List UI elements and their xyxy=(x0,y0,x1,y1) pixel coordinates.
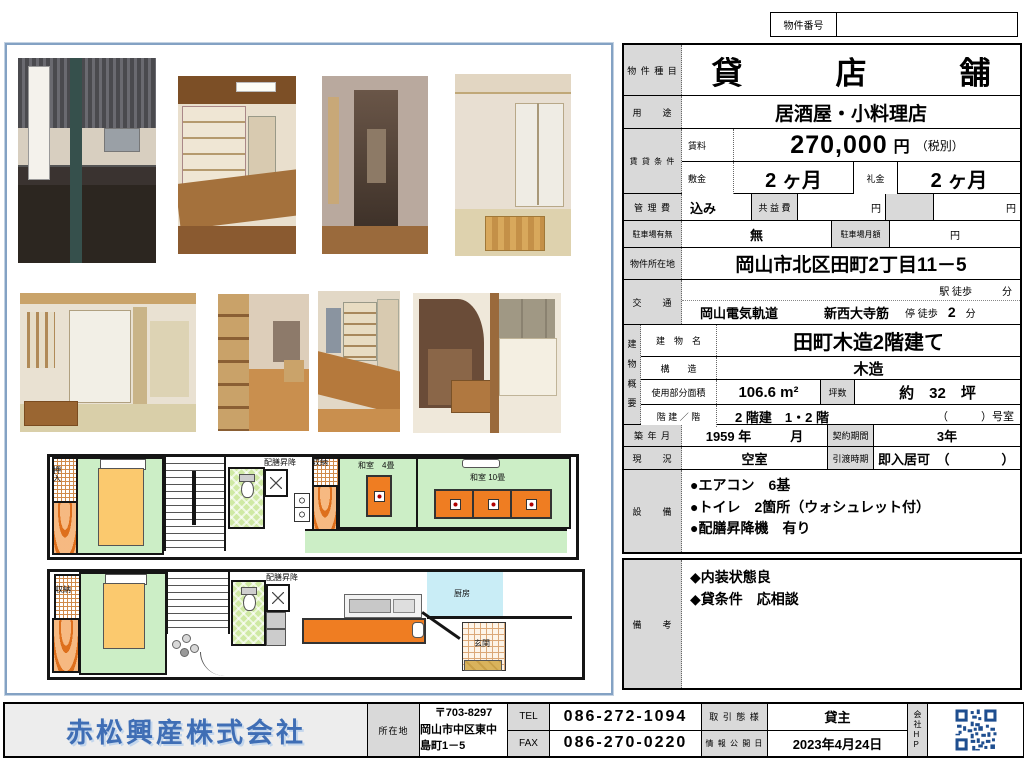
bname-label: 建 物 名 xyxy=(641,325,717,356)
floors-value: 2 階建 1・2 階 xyxy=(717,405,847,427)
address-label: 物件所在地 xyxy=(624,248,682,279)
tel-label: TEL xyxy=(507,704,549,730)
toilet-1f xyxy=(231,580,266,646)
footer-bar: 赤松興産株式会社 所在地 〒703-8297 岡山市中区東中島町1－5 TEL … xyxy=(3,702,1024,758)
remarks-label: 備 考 xyxy=(624,560,682,688)
photo-hallway xyxy=(322,76,428,254)
traffic-label: 交 通 xyxy=(624,280,682,324)
usage-value: 居酒屋・小料理店 xyxy=(682,96,1020,128)
rent-unit: 円 xyxy=(894,133,910,157)
traffic-stop: 新西大寺筋 xyxy=(824,303,889,322)
structure-value: 木造 xyxy=(717,357,1020,379)
haizen-2f-label: 配膳昇降 xyxy=(264,459,296,467)
washarea-1f xyxy=(52,618,80,673)
bname-value: 田町木造2階建て xyxy=(717,325,1020,356)
entrance-mat xyxy=(464,660,502,671)
room-2f-left xyxy=(76,457,164,555)
company-name: 赤松興産株式会社 xyxy=(66,711,306,750)
back-counter-1f xyxy=(344,594,422,618)
counter-1f xyxy=(302,618,426,644)
rent-note: （税別） xyxy=(916,137,964,154)
mgmt-label: 管 理 費 xyxy=(624,194,682,220)
photo-tatami-alcove xyxy=(413,293,561,433)
company-hp-label: 会 社 H P xyxy=(907,704,927,756)
deal-value: 貸主 xyxy=(767,704,907,730)
built-value: 1959 年 月 xyxy=(682,425,828,446)
contract-label: 契約期間 xyxy=(828,425,874,446)
property-number-box: 物件番号 xyxy=(770,12,1018,37)
rent-value: 270,000 xyxy=(790,131,887,160)
stairs-2f xyxy=(164,457,226,551)
parking-label: 駐車場有無 xyxy=(624,221,682,247)
property-number-value xyxy=(837,13,1017,36)
traffic-company: 岡山電気軌道 xyxy=(700,303,778,322)
building-label: 建 物 概 要 xyxy=(624,325,641,424)
kyoueki-label: 共 益 費 xyxy=(752,194,798,220)
status-label: 現 況 xyxy=(624,447,682,469)
handover-label: 引渡時期 xyxy=(828,447,874,469)
washarea-2f-2 xyxy=(312,485,338,533)
mgmt-extra-value: 円 xyxy=(934,194,1020,220)
floorplan-1f: 収納 配膳昇降 厨房 玄関 xyxy=(47,569,585,680)
handover-value: 即入居可 （ ） xyxy=(874,447,1020,469)
photo-counter-shelves xyxy=(178,76,296,254)
lease-label: 賃 貸 条 件 xyxy=(624,129,682,193)
dumbwaiter-1f xyxy=(266,584,290,612)
rent-label: 賃料 xyxy=(682,129,734,161)
remarks-item: ◆貸条件 応相談 xyxy=(690,588,1020,610)
storage-1f xyxy=(54,574,81,620)
photo-tatami-room-2 xyxy=(20,293,196,432)
floors-label: 階 建 ／ 階 xyxy=(641,405,717,427)
traffic-line1: 駅 徒歩 分 xyxy=(682,280,1020,301)
contract-value: 3年 xyxy=(874,425,1020,446)
photo-and-plan-panel: 押入 配膳昇降 収納 和室 4畳 和室 10畳 xyxy=(5,43,613,695)
shuno-2f-label: 収納 xyxy=(312,459,328,467)
genkan-label: 玄関 xyxy=(474,640,490,648)
deposit-label: 敷金 xyxy=(682,162,734,194)
company-address: 岡山市中区東中島町1－5 xyxy=(420,722,507,755)
date-label: 情 報 公 開 日 xyxy=(701,731,767,757)
key-money-label: 礼金 xyxy=(854,162,898,194)
remarks-box: 備 考 ◆内装状態良 ◆貸条件 応相談 xyxy=(622,558,1022,690)
oshiire-label: 押入 xyxy=(53,467,62,484)
property-info-table: 物 件 種 目 貸 店 舗 用 途 居酒屋・小料理店 賃 貸 条 件 賃料 27… xyxy=(622,43,1022,554)
toilet-2f xyxy=(228,467,265,529)
tel-value: 086-272-1094 xyxy=(549,704,701,730)
fax-value: 086-270-0220 xyxy=(549,731,701,757)
type-label: 物 件 種 目 xyxy=(624,45,682,95)
corridor-2f xyxy=(305,529,567,553)
address-value: 岡山市北区田町2丁目11－5 xyxy=(682,248,1020,279)
qr-code xyxy=(954,708,998,752)
mgmt-extra-label xyxy=(886,194,934,220)
property-number-label: 物件番号 xyxy=(771,13,837,36)
usage-label: 用 途 xyxy=(624,96,682,128)
status-value: 空室 xyxy=(682,447,828,469)
tsubo-value: 約 32 坪 xyxy=(855,380,1020,404)
photo-exterior xyxy=(18,58,156,263)
haizen-1f-label: 配膳昇降 xyxy=(266,574,298,582)
kyoueki-value: 円 xyxy=(798,194,886,220)
kitchen-label: 厨房 xyxy=(454,590,470,598)
parking-monthly-label: 駐車場月額 xyxy=(832,221,890,247)
key-money-value: 2 ヶ月 xyxy=(898,162,1020,194)
area-value: 106.6 m² xyxy=(717,380,821,404)
date-value: 2023年4月24日 xyxy=(767,731,907,757)
washitsu-4: 和室 4畳 xyxy=(338,457,418,529)
remarks-item: ◆内装状態良 xyxy=(690,566,1020,588)
structure-label: 構 造 xyxy=(641,357,717,379)
photo-hallway-shelves xyxy=(218,294,309,431)
deposit-value: 2 ヶ月 xyxy=(734,162,854,194)
floors-room: （ ）号室 xyxy=(847,405,1020,427)
equipment-label: 設 備 xyxy=(624,470,682,552)
traffic-tail: 停 徒歩 xyxy=(905,305,938,320)
built-label: 築 年 月 xyxy=(624,425,682,446)
mgmt-value: 込み xyxy=(682,194,752,220)
company-address-label: 所在地 xyxy=(367,704,419,756)
floorplan-2f: 押入 配膳昇降 収納 和室 4畳 和室 10畳 xyxy=(47,454,579,560)
room-1f-left xyxy=(79,572,167,675)
washitsu-10: 和室 10畳 xyxy=(416,457,571,529)
traffic-unit: 分 xyxy=(966,305,976,320)
tsubo-label: 坪数 xyxy=(821,380,855,404)
parking-monthly-value: 円 xyxy=(890,221,1020,247)
equipment-item: ●配膳昇降機 有り xyxy=(690,518,1020,540)
type-value: 貸 店 舗 xyxy=(682,45,1020,95)
deal-label: 取 引 態 様 xyxy=(701,704,767,730)
equipment-item: ●トイレ 2箇所（ウォシュレット付） xyxy=(690,497,1020,519)
stairs-1f xyxy=(166,572,230,634)
dumbwaiter-2f xyxy=(264,469,288,497)
traffic-min: 2 xyxy=(948,304,956,320)
door-arc-1f xyxy=(200,652,225,676)
photo-counter-2 xyxy=(318,291,400,432)
parking-value: 無 xyxy=(682,221,832,247)
washarea-2f xyxy=(52,501,78,555)
photo-tatami-room-1 xyxy=(455,74,571,256)
fax-label: FAX xyxy=(507,731,549,757)
company-postal: 〒703-8297 xyxy=(435,705,493,722)
shuno-1f-label: 収納 xyxy=(55,586,71,594)
area-label: 使用部分面積 xyxy=(641,380,717,404)
equipment-item: ●エアコン 6基 xyxy=(690,475,1020,497)
